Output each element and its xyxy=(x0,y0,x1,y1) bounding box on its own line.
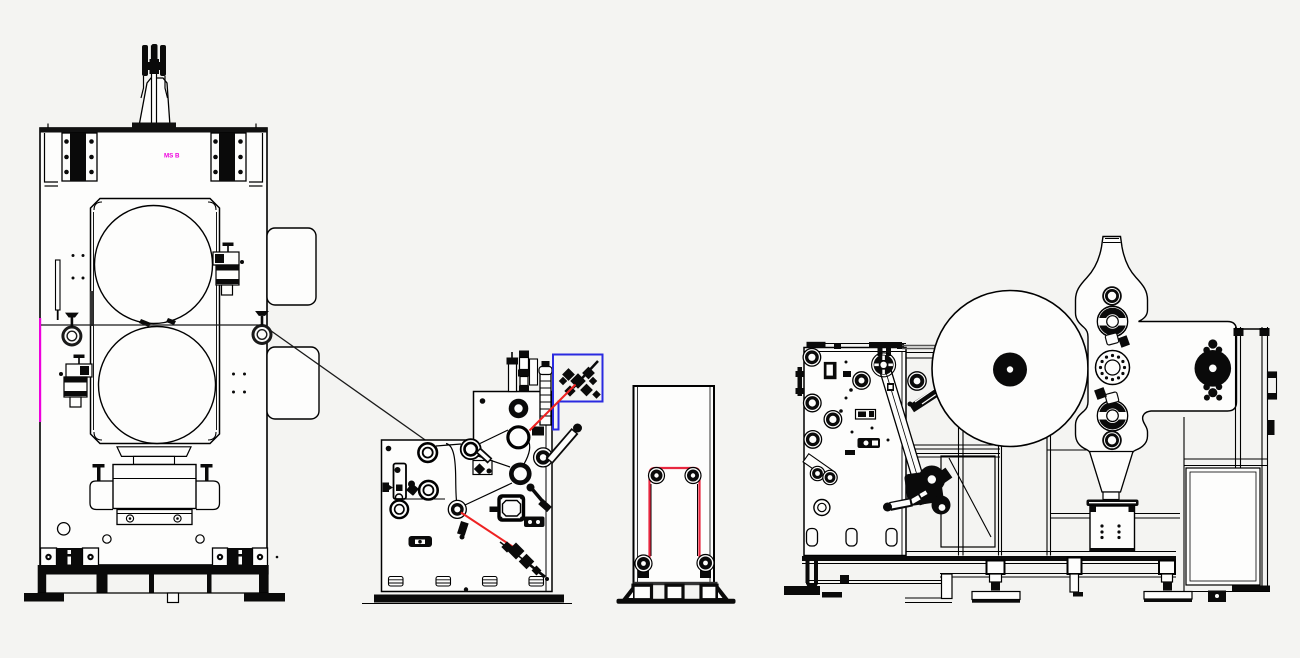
svg-text:MS B: MS B xyxy=(164,153,180,160)
